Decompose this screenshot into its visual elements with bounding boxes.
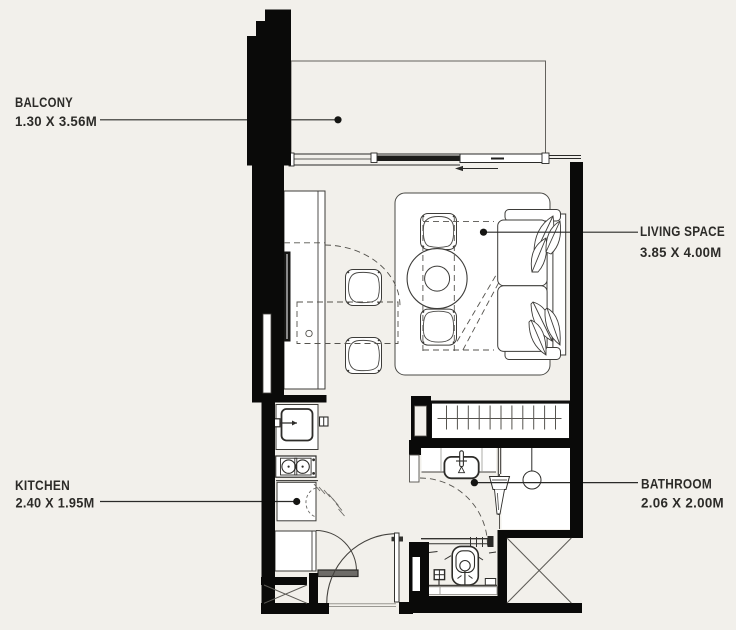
svg-text:LIVING SPACE: LIVING SPACE	[640, 223, 725, 239]
svg-text:2.06 X 2.00M: 2.06 X 2.00M	[641, 495, 724, 511]
svg-text:2.40 X 1.95M: 2.40 X 1.95M	[16, 495, 95, 511]
svg-text:BALCONY: BALCONY	[15, 94, 73, 110]
svg-text:1.30 X 3.56M: 1.30 X 3.56M	[15, 113, 97, 129]
svg-text:3.85 X 4.00M: 3.85 X 4.00M	[640, 244, 722, 260]
svg-text:KITCHEN: KITCHEN	[15, 477, 70, 493]
svg-text:BATHROOM: BATHROOM	[641, 476, 712, 492]
